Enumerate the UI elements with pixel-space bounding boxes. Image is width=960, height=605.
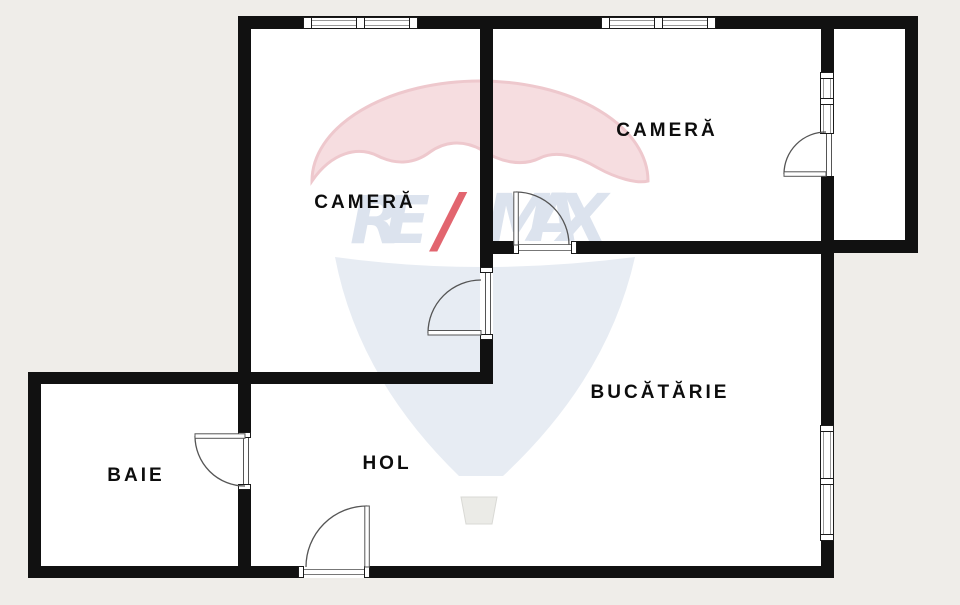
door-arc-divider [516,192,569,245]
door-leaf-baie [195,434,245,439]
door-leaf-center [428,331,481,336]
room-label-baie: BAIE [107,465,164,487]
door-swings [0,0,960,605]
room-label-bucatarie: BUCĂTĂRIE [591,382,730,404]
room-label-camera-left: CAMERĂ [314,192,415,214]
door-arc-baie [195,436,245,486]
door-arc-camera-right-side [784,132,826,174]
door-leaf-divider [514,192,519,245]
door-leaf-camera-right-side [784,172,826,177]
door-leaf-entrance [365,506,370,567]
door-arc-entrance [306,506,367,567]
room-label-camera-right: CAMERĂ [616,120,717,142]
floor-plan: RE / MAX [0,0,960,605]
door-arc-center [428,280,481,333]
room-label-hol: HOL [362,453,411,475]
